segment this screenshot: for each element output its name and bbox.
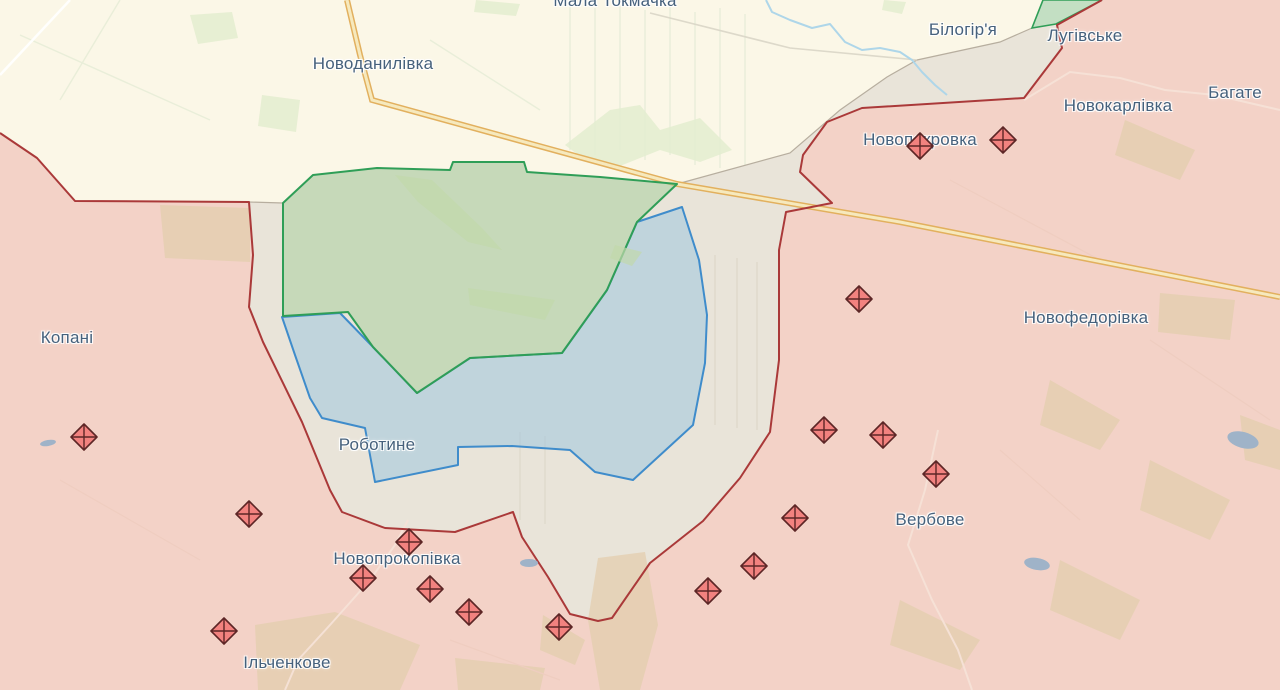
vegetation-free bbox=[190, 0, 906, 166]
map-base-layer bbox=[0, 0, 1280, 690]
map-canvas[interactable]: Мала ТокмачкаНоводанилівкаБілогір'яЛугів… bbox=[0, 0, 1280, 690]
